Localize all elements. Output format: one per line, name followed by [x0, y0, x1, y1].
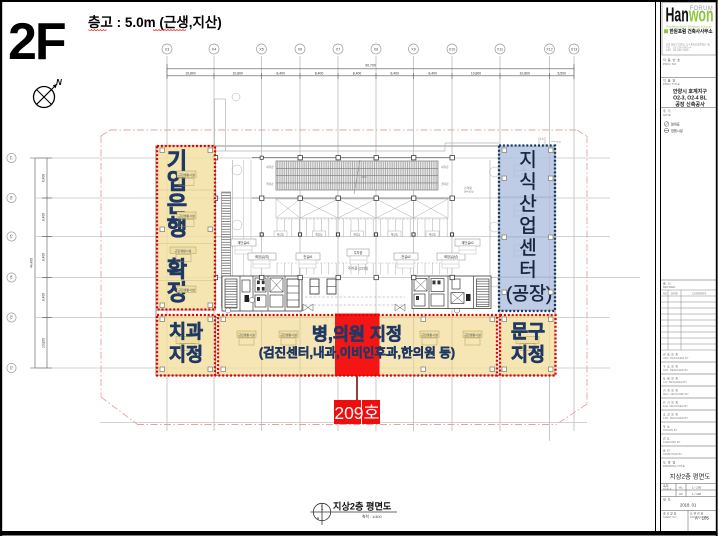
svg-text:계단실#1: 계단실#1: [237, 240, 250, 245]
svg-text:90,700: 90,700: [365, 64, 375, 68]
svg-text:Y4: Y4: [10, 275, 14, 279]
svg-text:센: 센: [519, 237, 536, 259]
svg-text:Y6: Y6: [10, 196, 14, 200]
svg-text:Y2: Y2: [10, 366, 14, 370]
svg-text:층고 : 5.0m (근생,지산): 층고 : 5.0m (근생,지산): [88, 14, 222, 30]
svg-text:2018. 01: 2018. 01: [680, 503, 697, 508]
svg-text:APPROVED BY: APPROVED BY: [663, 452, 682, 456]
svg-text:5,500: 5,500: [557, 71, 566, 75]
svg-text:(검진센터,내과,이비인후과,한의원 등): (검진센터,내과,이비인후과,한의원 등): [259, 345, 455, 360]
svg-text:근린생활시설: 근린생활시설: [238, 332, 255, 337]
svg-text:10,800: 10,800: [42, 338, 46, 348]
svg-text:근린생활시설: 근린생활시설: [178, 213, 195, 218]
svg-text:전실#2: 전실#2: [401, 254, 411, 259]
svg-text:44,400: 44,400: [30, 258, 34, 268]
svg-text:건축설계: 건축설계: [663, 353, 679, 357]
svg-text:X6: X6: [298, 47, 302, 51]
svg-text:문구: 문구: [511, 321, 545, 342]
svg-text:승인: 승인: [663, 449, 671, 453]
svg-text:STR. DESIGNED BY: STR. DESIGNED BY: [663, 368, 688, 372]
svg-text:8,400: 8,400: [276, 71, 285, 75]
svg-text:지정: 지정: [511, 344, 545, 365]
svg-text:매장동: 매장동: [391, 232, 399, 236]
svg-text:SHEET NO: SHEET NO: [663, 515, 676, 519]
svg-text:8,400: 8,400: [42, 174, 46, 182]
svg-text:SCALE: SCALE: [663, 487, 672, 491]
svg-text:Y5: Y5: [10, 234, 14, 238]
svg-text:내려감: 내려감: [266, 165, 274, 169]
svg-text:지상2층 평면도: 지상2층 평면도: [333, 501, 392, 512]
svg-text:행: 행: [167, 215, 187, 240]
svg-text:방위표: 방위표: [671, 122, 680, 127]
svg-text:1.5: 1.5: [540, 137, 544, 141]
svg-text:근린생활시설: 근린생활시설: [175, 248, 192, 253]
svg-text:전실#1: 전실#1: [303, 254, 313, 259]
svg-text:근린생활시설: 근린생활시설: [421, 332, 438, 337]
svg-text:FAX : 02-226-7062: FAX : 02-226-7062: [666, 48, 689, 52]
svg-text:매장동: 매장동: [429, 232, 437, 236]
svg-text:Y3: Y3: [10, 315, 14, 319]
svg-text:매장동: 매장동: [353, 232, 361, 236]
svg-text:PROJ. TITLE: PROJ. TITLE: [663, 82, 680, 86]
svg-text:REVISED: REVISED: [663, 285, 675, 289]
svg-text:한원포럼 건축사사무소: 한원포럼 건축사사무소: [670, 27, 713, 35]
svg-text:X4: X4: [212, 47, 216, 51]
svg-text:조경설계: 조경설계: [663, 413, 679, 417]
svg-text:X3: X3: [165, 47, 169, 51]
svg-text:8,400: 8,400: [390, 71, 399, 75]
svg-text:8,400: 8,400: [428, 71, 437, 75]
svg-text:ELE. DESIGNED BY: ELE. DESIGNED BY: [663, 404, 688, 408]
svg-text:N: N: [56, 78, 62, 87]
svg-text:공장 신축공사: 공장 신축공사: [675, 101, 705, 108]
svg-text:Y7: Y7: [10, 156, 14, 160]
svg-text:A - 105: A - 105: [695, 516, 709, 521]
svg-text:DATE: DATE: [671, 291, 678, 295]
svg-text:8,400: 8,400: [42, 253, 46, 261]
svg-text:X7: X7: [336, 47, 340, 51]
svg-text:안양시 호계지구: 안양시 호계지구: [673, 88, 708, 95]
svg-text:X5: X5: [259, 47, 263, 51]
svg-text:검토: 검토: [663, 437, 671, 441]
svg-text:10,800: 10,800: [233, 71, 243, 75]
svg-text:화장실(여): 화장실(여): [255, 254, 269, 259]
svg-text:NO.: NO.: [663, 291, 668, 295]
svg-text:CIV. DESIGNED BY: CIV. DESIGNED BY: [663, 380, 687, 384]
svg-text:(H=25t): (H=25t): [464, 190, 473, 194]
svg-text:1: 1: [321, 506, 324, 512]
svg-text:CONTENTS: CONTENTS: [692, 291, 707, 295]
svg-text:내려감: 내려감: [441, 165, 449, 169]
svg-text:올라감: 올라감: [266, 182, 274, 186]
svg-text:A3: A3: [679, 492, 683, 496]
svg-text:O2-3, O2-4 BL: O2-3, O2-4 BL: [673, 96, 707, 102]
svg-text:지: 지: [519, 149, 536, 171]
svg-text:MEC. DESIGNED BY: MEC. DESIGNED BY: [663, 392, 689, 396]
svg-text:NOTE: NOTE: [663, 113, 671, 117]
svg-text:기계설계: 기계설계: [663, 389, 679, 393]
svg-text:A1: A1: [679, 486, 683, 490]
svg-text:1 / 200: 1 / 200: [692, 486, 702, 490]
svg-text:주차장 (22대): 주차장 (22대): [348, 266, 369, 271]
svg-text:구조설계: 구조설계: [663, 365, 679, 369]
svg-text:DRAWN BY: DRAWN BY: [663, 428, 678, 432]
svg-text:근린생활시설: 근린생활시설: [178, 287, 195, 292]
svg-text:근린생활시설: 근린생활시설: [280, 332, 297, 337]
svg-text:8,400: 8,400: [315, 71, 324, 75]
svg-text:산: 산: [519, 193, 536, 215]
svg-text:8,400: 8,400: [353, 71, 362, 75]
svg-text:DRAWING TITLE: DRAWING TITLE: [663, 464, 685, 468]
svg-text:1.5: 1.5: [557, 140, 561, 144]
svg-text:전기설계: 전기설계: [663, 401, 679, 405]
svg-text:X12: X12: [546, 47, 552, 51]
svg-text:치과: 치과: [169, 321, 203, 342]
svg-text:X9: X9: [411, 47, 415, 51]
svg-text:1 / 400: 1 / 400: [692, 492, 702, 496]
svg-text:병,의원 지정: 병,의원 지정: [312, 324, 402, 344]
svg-text:X8: X8: [374, 47, 378, 51]
svg-text:업: 업: [519, 215, 536, 237]
svg-text:LAN. DESIGNED BY: LAN. DESIGNED BY: [663, 416, 688, 420]
svg-text:올라감: 올라감: [441, 182, 449, 186]
svg-text:10,800: 10,800: [185, 71, 195, 75]
svg-text:209호: 209호: [334, 403, 379, 423]
svg-text:지상2층 평면도: 지상2층 평면도: [670, 472, 711, 481]
svg-text:10,800: 10,800: [471, 71, 481, 75]
svg-text:X13: X13: [571, 47, 577, 51]
svg-text:토목설계: 토목설계: [663, 377, 679, 381]
svg-text:10,800: 10,800: [520, 71, 530, 75]
svg-text:45%: 45%: [361, 175, 367, 179]
svg-text:ARC. DESIGNED BY: ARC. DESIGNED BY: [663, 356, 689, 360]
svg-text:방음시설: 방음시설: [671, 128, 683, 133]
svg-text:매장동: 매장동: [277, 232, 285, 236]
svg-text:축척 : 1/400: 축척 : 1/400: [362, 514, 382, 519]
svg-text:X10: X10: [449, 47, 455, 51]
svg-text:근린생활시설: 근린생활시설: [464, 332, 481, 337]
svg-text:공사명칭: 공사명칭: [663, 512, 677, 516]
svg-text:주차장: 주차장: [354, 250, 363, 255]
svg-text:X11: X11: [497, 47, 503, 51]
svg-text:근린생활시설: 근린생활시설: [178, 172, 195, 177]
svg-text:매장동: 매장동: [315, 232, 323, 236]
svg-text:계단실#2: 계단실#2: [461, 240, 474, 245]
svg-text:8,400: 8,400: [42, 293, 46, 301]
svg-text:CHECKED BY: CHECKED BY: [663, 440, 681, 444]
svg-text:2F: 2F: [8, 13, 65, 71]
svg-text:(공장): (공장): [506, 283, 552, 304]
svg-text:터: 터: [519, 259, 536, 281]
svg-text:지정: 지정: [169, 344, 203, 365]
svg-text:화장실(남): 화장실(남): [444, 254, 458, 259]
svg-text:8,400: 8,400: [42, 213, 46, 221]
svg-text:일자: 일자: [663, 497, 673, 502]
svg-text:PROJ. NO: PROJ. NO: [663, 62, 677, 66]
svg-text:식: 식: [519, 171, 536, 193]
svg-text:확: 확: [167, 257, 187, 282]
svg-text:작도: 작도: [663, 425, 671, 429]
svg-text:Architecture Design Group: Architecture Design Group: [666, 24, 712, 28]
